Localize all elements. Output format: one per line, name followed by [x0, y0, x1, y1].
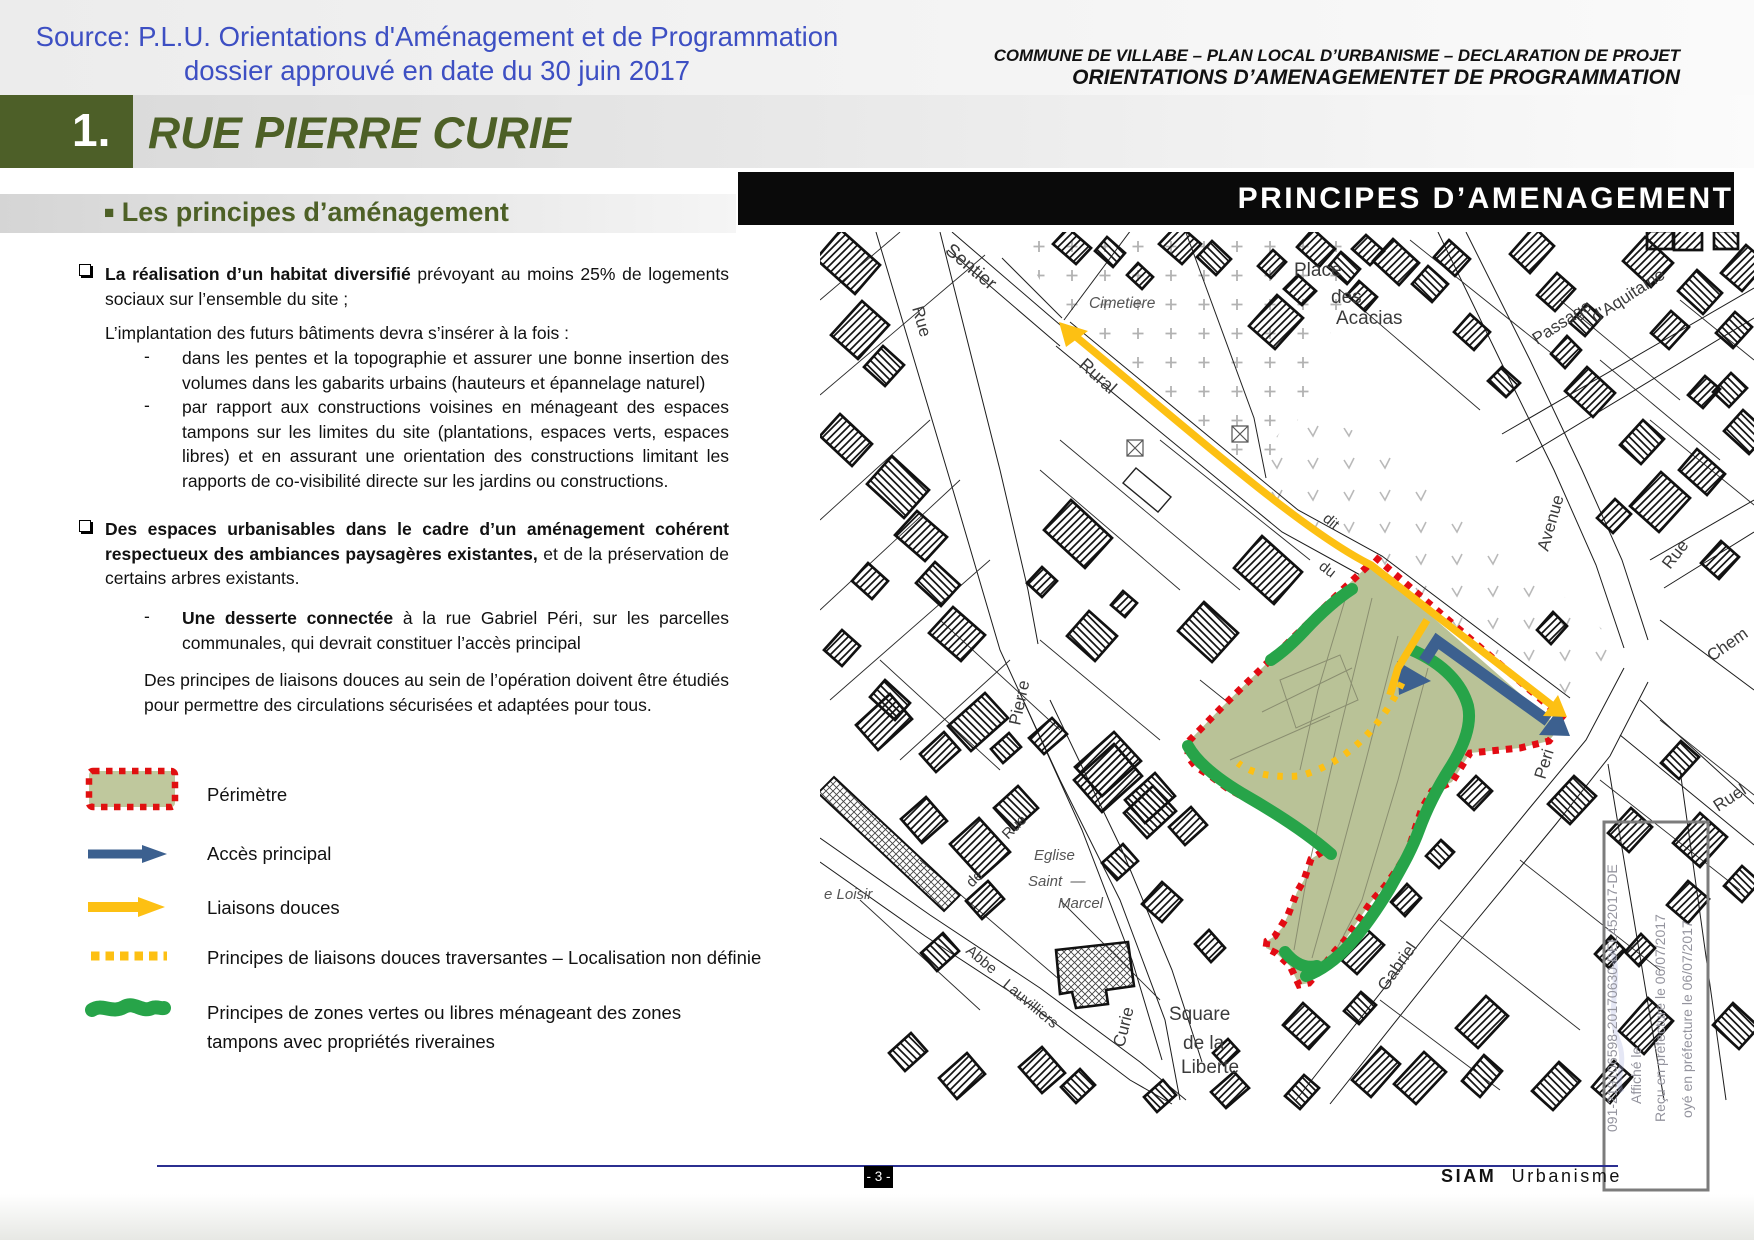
svg-text:de la: de la: [1183, 1033, 1225, 1054]
svg-text:Acacias: Acacias: [1336, 308, 1403, 329]
svg-text:des: des: [1331, 287, 1362, 308]
svg-text:e Loisir: e Loisir: [824, 886, 873, 903]
svg-text:Saint —: Saint —: [1028, 873, 1087, 890]
svg-text:Affiché le: Affiché le: [1628, 1046, 1644, 1104]
svg-text:091-219106598-20170630-DEL4520: 091-219106598-20170630-DEL452017-DE: [1604, 864, 1620, 1132]
svg-text:Marcel: Marcel: [1058, 895, 1104, 912]
svg-text:Place: Place: [1294, 260, 1342, 281]
svg-text:Reçu en préfecture le 06/07/20: Reçu en préfecture le 06/07/2017: [1652, 914, 1668, 1122]
svg-text:Cimetiere: Cimetiere: [1089, 295, 1156, 312]
svg-text:Liberte: Liberte: [1181, 1057, 1239, 1078]
svg-text:Square: Square: [1169, 1004, 1230, 1025]
svg-text:Eglise: Eglise: [1034, 847, 1075, 864]
svg-text:oyé en préfecture le 06/07/201: oyé en préfecture le 06/07/2017: [1679, 920, 1695, 1118]
